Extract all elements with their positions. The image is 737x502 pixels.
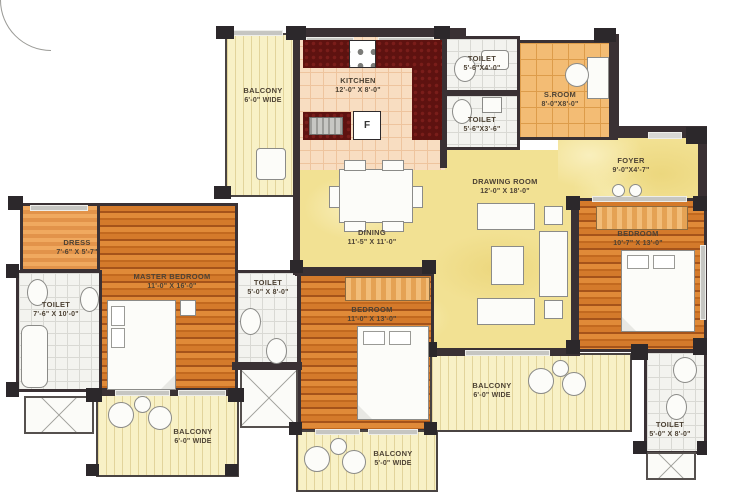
room-label-toilet-top: TOILET5'-6"X4'-0": [444, 54, 520, 73]
dining-chair: [329, 186, 340, 208]
window: [30, 205, 88, 211]
wc-icon: [666, 394, 687, 420]
sink-icon: [240, 308, 261, 335]
kitchen-counter: [412, 68, 442, 140]
balcony-table: [134, 396, 151, 413]
room-label-master-bedroom: MASTER BEDROOM11'-0" X 16'-0": [120, 272, 224, 291]
shaft-bottom-left: [24, 396, 94, 434]
fridge-icon: F: [353, 111, 381, 140]
bed-master: [107, 300, 176, 390]
window: [178, 390, 226, 396]
column: [697, 441, 707, 455]
room-label-drawing-room: DRAWING ROOM12'-0" X 18'-0": [454, 177, 556, 196]
column: [228, 388, 244, 402]
fridge-label: F: [364, 120, 370, 131]
room-label-balcony-bottom-right: BALCONY6'-0" WIDE: [440, 381, 544, 400]
bathtub-icon: [21, 325, 48, 388]
column: [86, 388, 102, 402]
column: [424, 422, 437, 435]
wc-icon: [266, 338, 287, 364]
kitchen-sink-icon: [309, 117, 343, 135]
room-label-servant-room: S.ROOM8'-0"X8'-0": [512, 90, 608, 109]
column: [8, 196, 23, 210]
wardrobe: [345, 277, 430, 301]
wall-drawing-east: [571, 198, 579, 355]
room-label-balcony-bottom-mid: BALCONY5'-0" WIDE: [341, 449, 445, 468]
column: [6, 264, 19, 278]
column: [289, 422, 302, 435]
window: [233, 30, 283, 36]
column: [686, 127, 707, 144]
foyer-stool: [612, 184, 625, 197]
kitchen-counter: [376, 40, 442, 68]
room-label-balcony-bottom-left: BALCONY6'-0" WIDE: [141, 427, 245, 446]
wall-kitchen-west: [293, 30, 300, 275]
balcony-chair: [562, 372, 586, 396]
dining-chair: [382, 160, 404, 171]
column: [631, 344, 648, 360]
dining-table: [339, 169, 413, 223]
window: [465, 350, 550, 356]
sofa: [477, 203, 535, 230]
coffee-table: [491, 246, 524, 285]
room-label-toilet-bottom-right: TOILET5'-0" X 8'-0": [628, 420, 712, 439]
floor-plan: F: [0, 0, 737, 502]
stove-icon: [349, 40, 376, 68]
column: [6, 382, 19, 397]
column: [693, 338, 707, 355]
sink-icon: [482, 97, 502, 113]
sofa: [477, 298, 535, 325]
column: [566, 196, 580, 210]
sink-icon: [673, 357, 697, 383]
side-table: [544, 206, 563, 225]
room-label-toilet-upper-mid: TOILET5'-6"X3'-6": [444, 115, 520, 134]
room-label-toilet-middle: TOILET5'-0" X 8'-0": [236, 278, 300, 297]
column: [434, 26, 450, 39]
bedside-table: [180, 300, 196, 316]
column: [86, 464, 99, 476]
column: [566, 340, 580, 354]
window: [315, 429, 360, 435]
bed-right: [621, 250, 695, 332]
room-label-bedroom-right: BEDROOM10'-7" X 13'-0": [586, 229, 690, 248]
entry-door: [648, 132, 682, 139]
shaft-middle: [240, 368, 298, 428]
room-label-toilet-master: TOILET7'-6" X 10'-0": [12, 300, 100, 319]
wardrobe: [596, 206, 688, 230]
window: [700, 245, 706, 320]
wall-toilet-mid-south: [232, 362, 302, 370]
foyer-stool: [629, 184, 642, 197]
room-label-dining: DINING11'-5" X 11'-0": [321, 228, 423, 247]
room-label-balcony-top-left: BALCONY6'-0" WIDE: [221, 86, 305, 105]
column: [422, 260, 436, 274]
bed-middle: [357, 326, 429, 420]
room-label-foyer: FOYER9'-0"X4'-7": [584, 156, 678, 175]
column: [290, 260, 303, 273]
sofa-long: [539, 231, 568, 297]
window: [592, 196, 687, 202]
dining-chair: [344, 160, 366, 171]
room-label-kitchen: KITCHEN12'-0" X 8'-0": [306, 76, 410, 95]
column: [286, 26, 306, 40]
side-table: [544, 300, 563, 319]
column: [693, 196, 707, 211]
column: [214, 186, 231, 199]
washing-machine-icon: [256, 148, 286, 180]
door-arc: [0, 0, 51, 51]
room-label-bedroom-middle: BEDROOM11'-0" X 13'-0": [320, 305, 424, 324]
dining-chair: [412, 186, 423, 208]
chair: [565, 63, 589, 87]
window: [368, 429, 418, 435]
column: [594, 28, 616, 42]
column: [216, 26, 234, 39]
balcony-chair: [304, 446, 330, 472]
balcony-chair: [108, 402, 134, 428]
room-label-dress: DRESS7'-6" X 5'-7": [28, 238, 126, 257]
column: [633, 441, 647, 454]
kitchen-counter: [303, 40, 349, 68]
column: [225, 464, 238, 476]
shaft-bottom-right: [646, 452, 696, 480]
wall-sroom-east: [609, 34, 619, 134]
wall-dining-south: [295, 267, 433, 276]
